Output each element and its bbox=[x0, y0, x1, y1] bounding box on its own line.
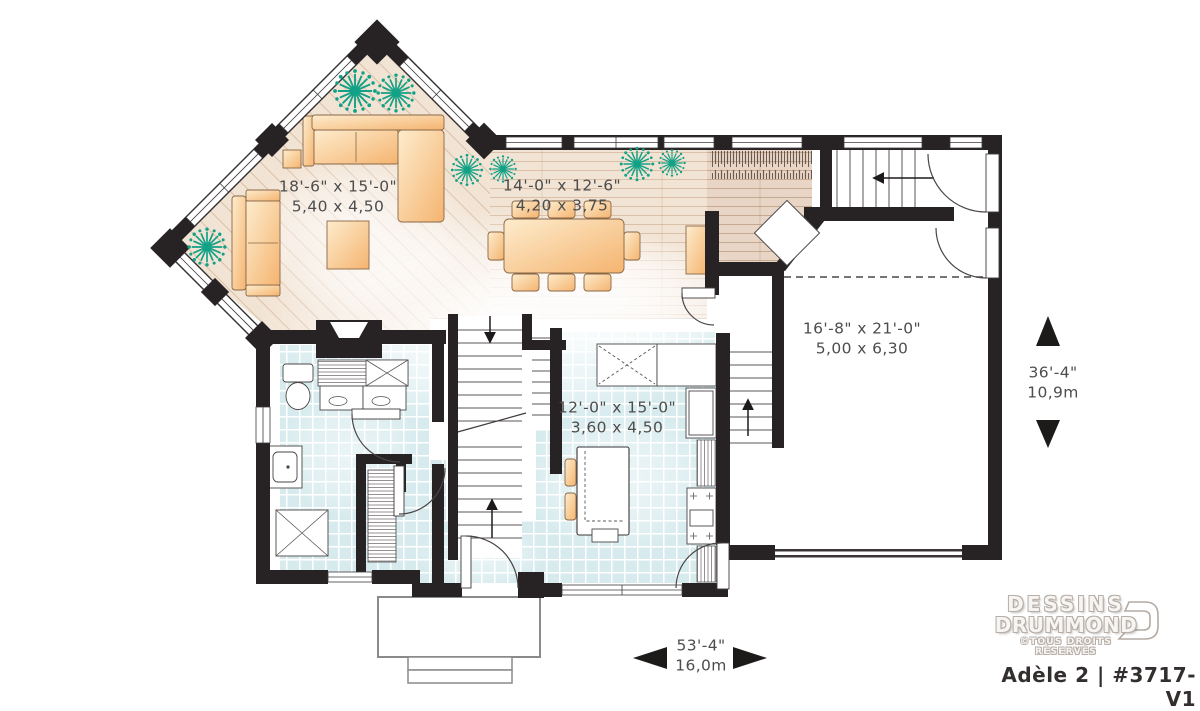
dining-chair bbox=[512, 274, 539, 291]
entry-exterior-door bbox=[928, 154, 999, 212]
window bbox=[844, 137, 922, 148]
dimension-arrow-down bbox=[1036, 420, 1060, 448]
kitchen-counter-hatch bbox=[697, 440, 716, 486]
width-dimension-label: 53'-4" 16,0m bbox=[675, 636, 727, 677]
dimension-arrow-right bbox=[733, 647, 767, 669]
window bbox=[256, 407, 270, 443]
window bbox=[562, 585, 682, 595]
laundry-shelf bbox=[318, 360, 408, 386]
brand-name-line2: DRUMMOND bbox=[988, 615, 1144, 636]
bathroom-vanity bbox=[268, 446, 302, 488]
dimension-arrow-up bbox=[1036, 316, 1060, 346]
plant-icon bbox=[187, 227, 226, 266]
garage-size-metric: 5,00 x 6,30 bbox=[803, 339, 921, 359]
window bbox=[506, 137, 562, 148]
plant-icon bbox=[620, 147, 655, 182]
fireplace bbox=[316, 320, 382, 358]
stove bbox=[687, 488, 716, 544]
kitchen-counter bbox=[657, 344, 716, 386]
plan-name: Adèle 2 bbox=[1001, 663, 1089, 687]
plant-icon bbox=[376, 73, 415, 112]
garage-side-door bbox=[936, 228, 999, 278]
window bbox=[328, 572, 372, 582]
brand-block: DESSINS DRUMMOND ©TOUS DROITS RÉSERVÉS A… bbox=[988, 594, 1196, 711]
depth-imperial: 36'-4" bbox=[1027, 363, 1079, 383]
dining-room-size-metric: 4,20 x 3,75 bbox=[503, 196, 621, 216]
width-imperial: 53'-4" bbox=[675, 636, 727, 656]
window bbox=[732, 137, 802, 148]
kitchen-label: 12'-0" x 15'-0" 3,60 x 4,50 bbox=[558, 398, 676, 439]
kitchen-size-imperial: 12'-0" x 15'-0" bbox=[558, 398, 676, 418]
window bbox=[950, 137, 982, 148]
kitchen-island bbox=[577, 447, 629, 542]
fridge bbox=[686, 388, 716, 438]
plant-icon bbox=[333, 69, 377, 113]
living-room-label: 18'-6" x 15'-0" 5,40 x 4,50 bbox=[279, 177, 397, 218]
window bbox=[574, 137, 658, 148]
garage-size-imperial: 16'-8" x 21'-0" bbox=[803, 319, 921, 339]
window bbox=[664, 137, 714, 148]
depth-dimension-label: 36'-4" 10,9m bbox=[1027, 363, 1079, 404]
living-room-size-imperial: 18'-6" x 15'-0" bbox=[279, 177, 397, 197]
porch-step bbox=[408, 670, 512, 683]
mudroom-steps bbox=[728, 345, 772, 448]
side-table bbox=[283, 150, 301, 168]
main-staircase bbox=[454, 316, 526, 558]
dining-chair bbox=[584, 274, 611, 291]
floor-plan-canvas: 18'-6" x 15'-0" 5,40 x 4,50 14'-0" x 12'… bbox=[0, 0, 1200, 711]
kitchen-counter-hatch bbox=[697, 546, 716, 582]
dining-room-size-imperial: 14'-0" x 12'-6" bbox=[503, 176, 621, 196]
brand-name-line1: DESSINS bbox=[988, 594, 1144, 615]
foyer-rug bbox=[710, 151, 818, 179]
garage-door bbox=[775, 549, 962, 552]
brand-rights: ©TOUS DROITS RÉSERVÉS bbox=[988, 637, 1144, 657]
dining-room-label: 14'-0" x 12'-6" 4,20 x 3,75 bbox=[503, 176, 621, 217]
depth-metric: 10,9m bbox=[1027, 383, 1079, 403]
dining-chair bbox=[488, 232, 504, 260]
dimension-arrow-left bbox=[633, 647, 667, 669]
living-room-size-metric: 5,40 x 4,50 bbox=[279, 197, 397, 217]
ottoman bbox=[327, 221, 369, 269]
loveseat bbox=[232, 190, 280, 296]
dining-chair bbox=[624, 232, 640, 260]
width-metric: 16,0m bbox=[675, 656, 727, 676]
garage-label: 16'-8" x 21'-0" 5,00 x 6,30 bbox=[803, 319, 921, 360]
plant-icon bbox=[658, 149, 686, 177]
washer bbox=[320, 386, 363, 410]
sideboard bbox=[686, 226, 707, 274]
linen-closet-shelves bbox=[368, 470, 396, 562]
porch bbox=[378, 597, 540, 683]
plant-icon bbox=[451, 154, 483, 186]
brand-logo-spacer bbox=[1144, 601, 1196, 651]
dining-table bbox=[504, 219, 624, 273]
pantry-cabinet bbox=[597, 344, 657, 386]
dryer bbox=[363, 386, 406, 410]
porch-step bbox=[408, 657, 512, 670]
plan-title-separator: | bbox=[1097, 663, 1105, 687]
dining-chair bbox=[548, 274, 575, 291]
island-stool bbox=[565, 493, 576, 520]
plan-title: Adèle 2 | #3717-V1 bbox=[988, 663, 1196, 711]
plan-number: #3717-V1 bbox=[1112, 663, 1196, 711]
shower bbox=[276, 510, 328, 556]
kitchen-size-metric: 3,60 x 4,50 bbox=[558, 418, 676, 438]
island-stool bbox=[565, 459, 576, 486]
